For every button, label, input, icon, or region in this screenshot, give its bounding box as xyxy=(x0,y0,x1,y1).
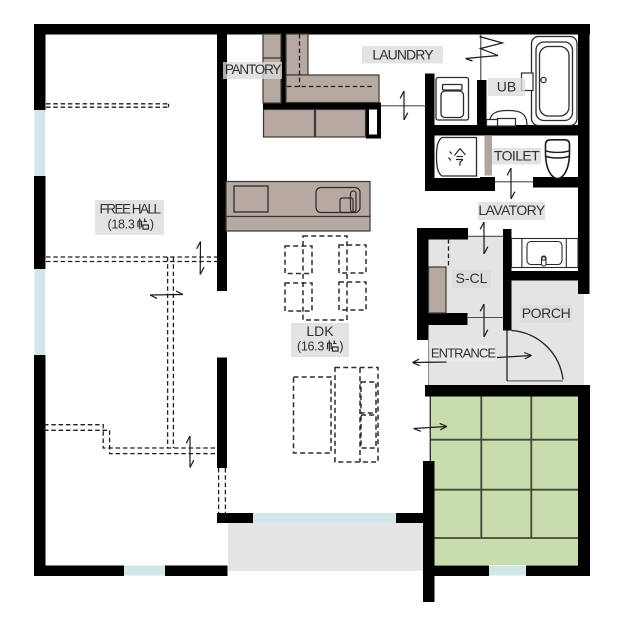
svg-text:S-CL: S-CL xyxy=(456,270,488,286)
svg-text:FREE HALL: FREE HALL xyxy=(99,202,161,217)
svg-text:): ) xyxy=(339,340,343,354)
svg-text:LAUNDRY: LAUNDRY xyxy=(372,47,434,63)
svg-text:(18.3: (18.3 xyxy=(108,218,135,232)
svg-text:UB: UB xyxy=(497,79,516,95)
svg-text:TOILET: TOILET xyxy=(494,148,540,164)
svg-text:PORCH: PORCH xyxy=(522,305,571,321)
svg-text:): ) xyxy=(150,218,154,232)
svg-text:LDK: LDK xyxy=(306,323,334,339)
svg-text:ENTRANCE: ENTRANCE xyxy=(431,346,497,361)
svg-text:(16.3: (16.3 xyxy=(297,340,324,354)
svg-text:PANTORY: PANTORY xyxy=(225,62,282,77)
svg-text:LAVATORY: LAVATORY xyxy=(478,202,546,218)
